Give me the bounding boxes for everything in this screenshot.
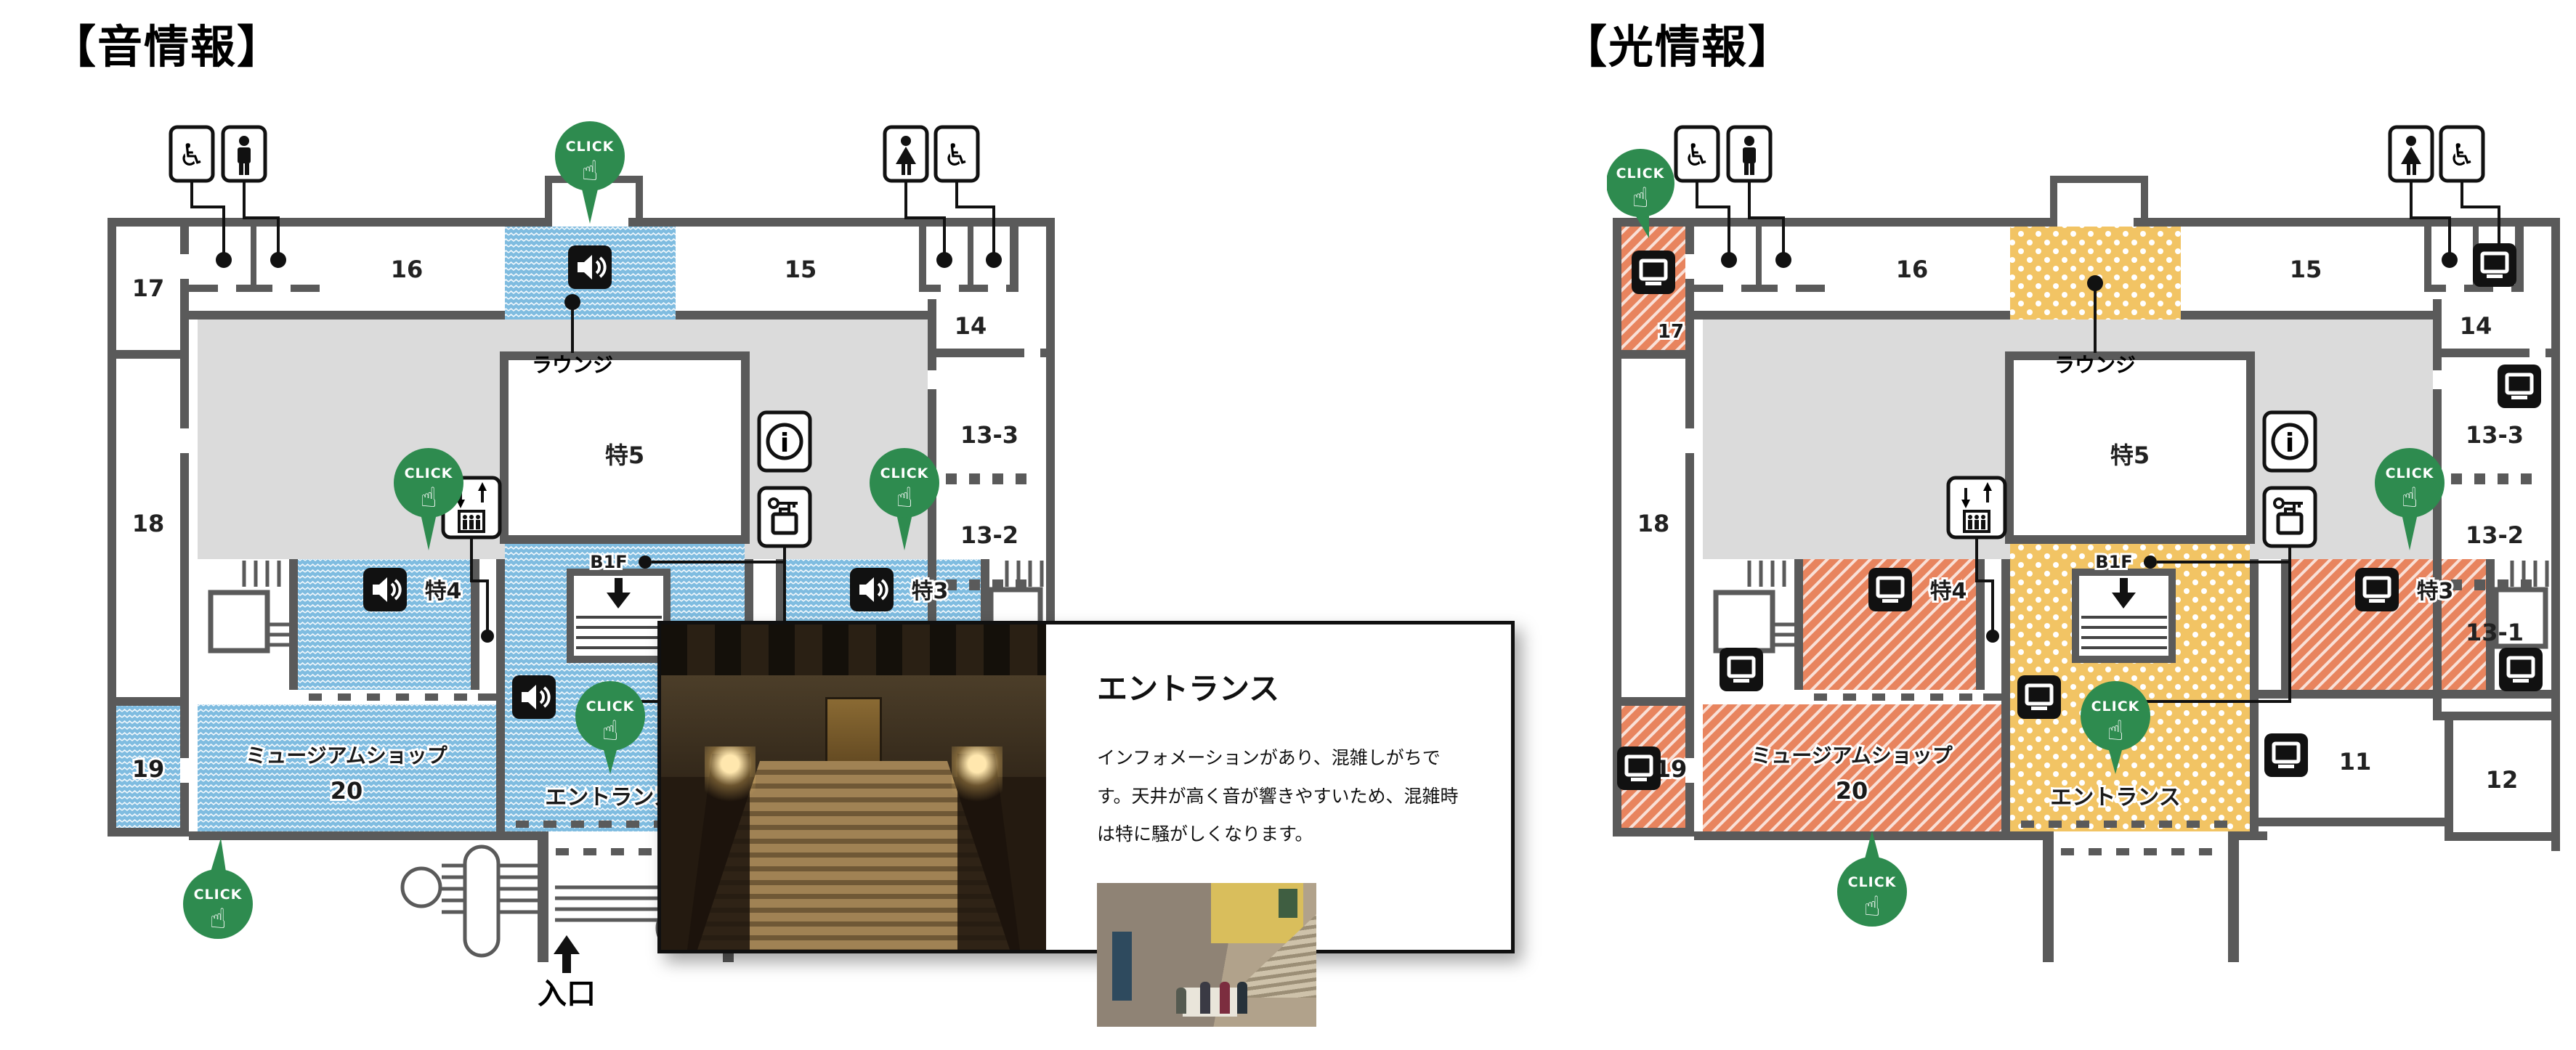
lounge-label: ラウンジ [2054, 353, 2136, 377]
room-toku4-label: 特4 [425, 579, 462, 604]
entrance-hall-label: エントランス [545, 785, 675, 810]
info-icon: i [759, 412, 810, 471]
room-shop[interactable] [1703, 704, 2001, 831]
room-shop[interactable] [198, 704, 496, 831]
light-map-title: 【光情報】 [1562, 10, 1794, 76]
entrance-staircase-photo [661, 624, 1046, 950]
click-bubble-20[interactable]: CLICK ☝ [1837, 831, 1907, 927]
speaker-icon-entrance[interactable] [512, 675, 556, 719]
room-toku3-label: 特3 [912, 579, 949, 604]
room-15-label: 15 [785, 256, 817, 283]
wheelchair-icon: ♿ [2448, 137, 2476, 173]
svg-text:CLICK: CLICK [405, 465, 453, 481]
room-17-label: 17 [1658, 321, 1684, 343]
monitor-icon-toku3[interactable] [2355, 568, 2399, 611]
pointer-hand-icon: ☝ [2401, 481, 2418, 513]
museum-shop-label: ミュージアムショップ [246, 744, 447, 768]
room-14-label: 14 [955, 312, 987, 340]
pointer-hand-icon: ☝ [209, 903, 226, 935]
entrance-hall-label: エントランス [2050, 785, 2180, 810]
room-16-label: 16 [391, 256, 424, 283]
svg-text:CLICK: CLICK [880, 465, 929, 481]
info-icon: i [2264, 412, 2315, 471]
popup-description: インフォメーションがあり、混雑しがちです。天井が高く音が響きやすいため、混雑時は… [1097, 739, 1467, 854]
click-bubble-lounge[interactable]: CLICK ☝ [555, 121, 625, 224]
monitor-icon-17[interactable] [1632, 251, 1675, 294]
room-11-label: 11 [2339, 748, 2372, 776]
room-13-2-label: 13-2 [960, 521, 1018, 549]
svg-text:CLICK: CLICK [566, 139, 615, 155]
svg-text:CLICK: CLICK [586, 699, 635, 715]
svg-text:CLICK: CLICK [2091, 699, 2140, 715]
pointer-hand-icon: ☝ [420, 481, 437, 513]
b1f-stairs [2075, 572, 2172, 659]
wheelchair-icon: ♿ [178, 137, 206, 173]
toilet-icons-right: ♿ [885, 127, 1002, 268]
entrance-gate-arrow [554, 935, 580, 973]
elevator-icon [1948, 478, 2005, 537]
stairwell-left [1716, 561, 1800, 651]
pointer-hand-icon: ☝ [896, 481, 912, 513]
wheelchair-icon: ♿ [943, 137, 971, 173]
room-13-3-label: 13-3 [2466, 421, 2524, 449]
coin-locker-icon [759, 488, 810, 546]
room-18-label: 18 [132, 510, 165, 537]
room-19-label: 19 [132, 755, 165, 783]
monitor-icon-11[interactable] [2264, 733, 2308, 777]
b1f-stairs [570, 572, 667, 659]
room-20-label: 20 [331, 777, 363, 805]
speaker-icon-toku3[interactable] [850, 568, 894, 611]
sound-map-title: 【音情報】 [51, 10, 283, 76]
svg-text:i: i [2285, 428, 2294, 458]
room-toku4-label: 特4 [1930, 579, 1967, 604]
monitor-icon-stairwell-right[interactable] [2499, 648, 2543, 691]
monitor-icon-entrance[interactable] [2017, 675, 2061, 719]
room-20-label: 20 [1836, 777, 1868, 805]
popup-title: エントランス [1097, 664, 1467, 709]
monitor-icon-toku4[interactable] [1868, 568, 1912, 611]
svg-text:CLICK: CLICK [2386, 465, 2434, 481]
pointer-hand-icon: ☝ [1632, 182, 1648, 213]
room-13-3-label: 13-3 [960, 421, 1018, 449]
svg-text:CLICK: CLICK [194, 887, 243, 903]
pointer-hand-icon: ☝ [602, 715, 618, 746]
monitor-icon-14[interactable] [2473, 243, 2516, 287]
room-12-label: 12 [2486, 766, 2519, 794]
room-toku5-label: 特5 [605, 441, 644, 469]
b1f-label: B1F [590, 552, 627, 572]
svg-text:CLICK: CLICK [1616, 166, 1665, 182]
room-16-label: 16 [1896, 256, 1929, 283]
entrance-lobby-photo [1097, 883, 1316, 1027]
monitor-icon-19[interactable] [1617, 746, 1661, 790]
speaker-icon-toku4[interactable] [363, 568, 407, 611]
entrance-detail-popup: エントランス インフォメーションがあり、混雑しがちです。天井が高く音が響きやすい… [657, 621, 1515, 953]
svg-text:CLICK: CLICK [1848, 874, 1897, 890]
floorplan-light: 特5 ♿ ♿ i [1607, 116, 2573, 973]
room-14-label: 14 [2460, 312, 2492, 340]
speaker-icon-lounge[interactable] [568, 245, 612, 289]
coin-locker-icon [2264, 488, 2315, 546]
pointer-hand-icon: ☝ [581, 155, 598, 187]
b1f-label: B1F [2095, 552, 2132, 572]
stairwell-left [211, 561, 295, 651]
room-toku3-label: 特3 [2417, 579, 2454, 604]
pointer-hand-icon: ☝ [1863, 890, 1880, 922]
room-18-label: 18 [1637, 510, 1670, 537]
room-13-1-label: 13-1 [2466, 619, 2524, 646]
wheelchair-icon: ♿ [1683, 137, 1711, 173]
click-bubble-19[interactable]: CLICK ☝ [183, 838, 253, 939]
room-13-2-label: 13-2 [2466, 521, 2524, 549]
room-17-label: 17 [132, 274, 165, 302]
svg-text:i: i [780, 428, 789, 458]
museum-shop-label: ミュージアムショップ [1751, 744, 1953, 768]
room-15-label: 15 [2290, 256, 2322, 283]
lounge-label: ラウンジ [532, 353, 613, 377]
entrance-gate-label: 入口 [538, 977, 596, 1011]
monitor-icon-13-3[interactable] [2498, 365, 2541, 408]
room-toku5-label: 特5 [2110, 441, 2150, 469]
monitor-icon-stairwell-left[interactable] [1720, 648, 1763, 691]
pointer-hand-icon: ☝ [2107, 715, 2123, 746]
